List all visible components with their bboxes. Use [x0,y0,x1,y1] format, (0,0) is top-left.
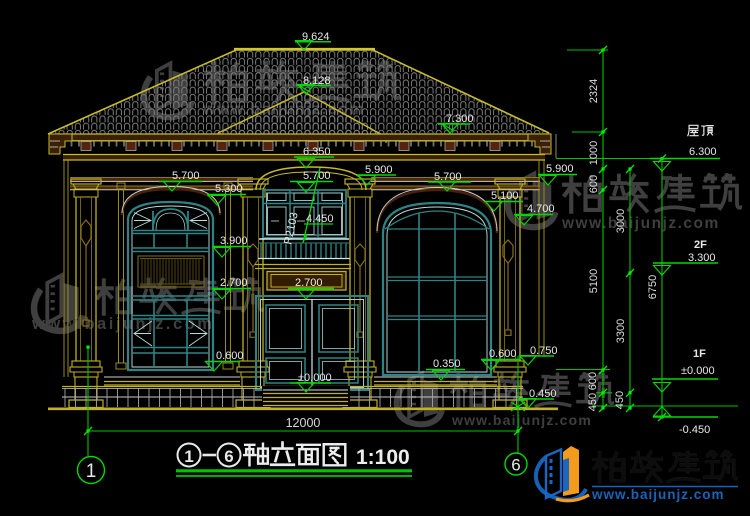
svg-text:0.600: 0.600 [489,348,517,360]
svg-text:2.700: 2.700 [220,277,248,289]
svg-text:5.700: 5.700 [172,170,200,182]
svg-text:www.baijunjz.com: www.baijunjz.com [561,215,720,232]
svg-text:2F: 2F [694,239,707,251]
svg-text:6: 6 [511,456,520,475]
svg-text:www.baijunjz.com: www.baijunjz.com [591,487,725,502]
svg-text:6: 6 [224,447,233,466]
svg-text:3.300: 3.300 [688,252,716,264]
svg-text:6.350: 6.350 [303,146,331,158]
svg-text:1000: 1000 [588,141,600,165]
svg-text:1: 1 [86,461,97,482]
svg-text:6750: 6750 [647,275,659,299]
svg-text:4.450: 4.450 [306,213,334,225]
svg-text:-0.450: -0.450 [679,424,710,436]
svg-text:5.100: 5.100 [491,190,519,202]
svg-text:0.600: 0.600 [216,350,244,362]
svg-text:0.350: 0.350 [433,358,461,370]
svg-text:5100: 5100 [588,269,600,293]
svg-text:www.baijunjz.com: www.baijunjz.com [451,412,592,428]
svg-text:1:100: 1:100 [356,446,410,469]
svg-text:3300: 3300 [615,319,627,343]
svg-text:450: 450 [587,393,599,411]
svg-text:5.900: 5.900 [546,163,574,175]
svg-text:6.300: 6.300 [689,146,717,158]
svg-text:±0.000: ±0.000 [681,365,715,377]
svg-text:12000: 12000 [286,416,321,430]
svg-text:5.900: 5.900 [365,164,393,176]
svg-text:600: 600 [587,372,599,390]
svg-text:600: 600 [588,175,600,193]
svg-text:3.900: 3.900 [220,235,248,247]
svg-text:5.300: 5.300 [215,183,243,195]
svg-text:1: 1 [184,447,193,466]
svg-text:1F: 1F [693,348,706,360]
svg-text:2324: 2324 [588,79,600,103]
svg-text:450: 450 [614,391,626,409]
svg-text:4.700: 4.700 [527,203,555,215]
svg-text:3000: 3000 [615,209,627,233]
svg-text:2.700: 2.700 [295,277,323,289]
